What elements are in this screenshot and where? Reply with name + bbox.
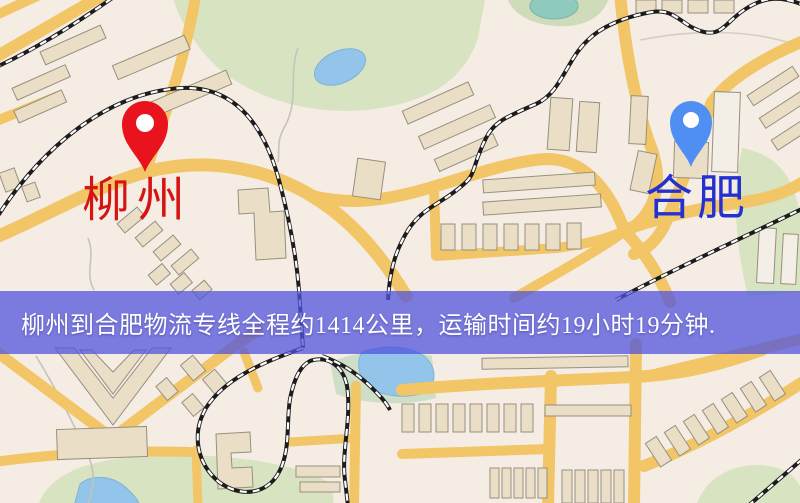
map-screenshot: 柳州 合肥 柳州到合肥物流专线全程约1414公里，运输时间约19小时19分钟. bbox=[0, 0, 800, 503]
origin-pin-hole bbox=[136, 114, 154, 132]
destination-pin-hole bbox=[683, 112, 699, 128]
origin-city-label: 柳州 bbox=[82, 177, 192, 225]
route-info-banner: 柳州到合肥物流专线全程约1414公里，运输时间约19小时19分钟. bbox=[0, 291, 800, 354]
destination-city-label: 合肥 bbox=[645, 175, 749, 223]
map-background bbox=[0, 0, 800, 503]
route-info-text: 柳州到合肥物流专线全程约1414公里，运输时间约19小时19分钟. bbox=[21, 305, 716, 340]
